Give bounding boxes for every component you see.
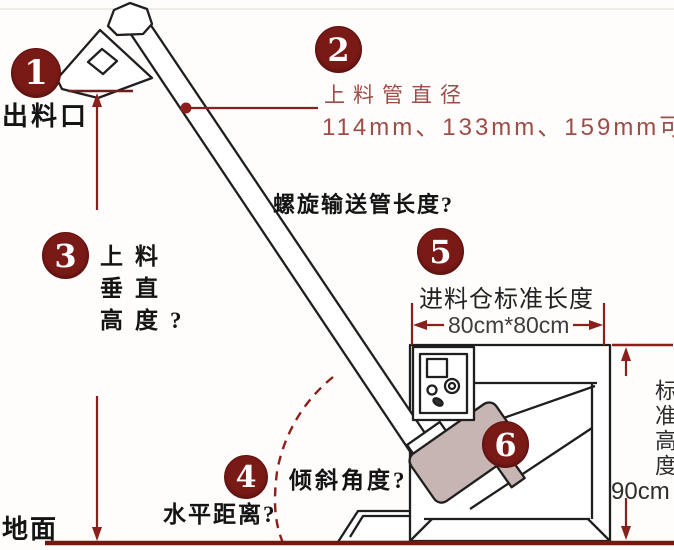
base-platform (338, 511, 418, 542)
pipe-diameter-options: 114mm、133mm、159mm可 (322, 107, 674, 142)
vertical-height-line3: 高度? (100, 305, 194, 337)
incline-angle-label: 倾斜角度? (289, 461, 408, 495)
vertical-height-line1: 上料 (100, 241, 194, 273)
hopper-width-value: 80cm*80cm (444, 312, 573, 339)
incline-angle-arc (275, 377, 333, 543)
standard-height-value: 90cm (611, 478, 670, 506)
pipe-length-question: 螺旋输送管长度? (273, 187, 454, 219)
callout-6-badge: 6 (482, 421, 529, 468)
vertical-height-label: 上料 垂直 高度? (100, 241, 194, 337)
hopper-length-title: 进料仓标准长度 (419, 279, 594, 314)
ground-label: 地面 (2, 509, 58, 546)
vertical-height-line2: 垂直 (100, 273, 194, 305)
callout-2-badge: 2 (315, 26, 362, 73)
horizontal-distance-label: 水平距离? (163, 495, 277, 529)
top-motor-cap (108, 3, 152, 35)
outlet-label: 出料口 (2, 96, 89, 133)
callout-4-badge: 4 (224, 455, 268, 499)
conveyor-diagram: 1 2 3 4 5 6 出料口 上料管直径 114mm、133mm、159mm可… (0, 0, 674, 550)
callout-3-badge: 3 (42, 232, 89, 279)
control-panel (413, 347, 474, 420)
callout-1-badge: 1 (11, 48, 61, 98)
callout-5-badge: 5 (417, 228, 464, 275)
standard-height-label: 标准高度 (648, 379, 674, 479)
pipe-diameter-title: 上料管直径 (324, 79, 469, 109)
